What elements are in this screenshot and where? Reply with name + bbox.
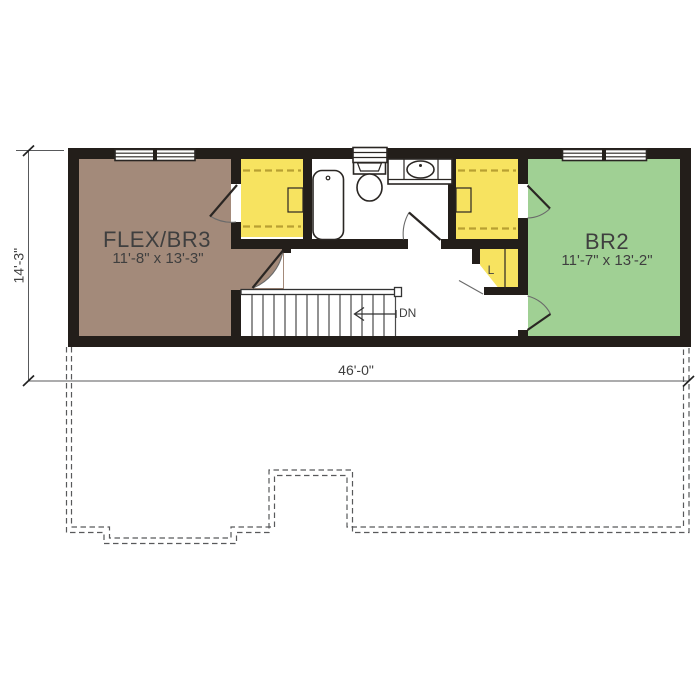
railing-newel-cap [395, 288, 402, 297]
wall-segment [231, 239, 408, 249]
room-dims-flex-br3: 11'-8" x 13'-3" [79, 251, 237, 268]
window-mullion [153, 150, 157, 161]
floor-plan-drawing [0, 0, 700, 700]
toilet-bowl [357, 174, 382, 201]
door-opening [408, 239, 441, 249]
shelf-bracket [288, 188, 303, 212]
wall-segment [518, 159, 528, 184]
window-mullion [602, 150, 606, 161]
wall-segment [231, 159, 241, 184]
sink-basin [407, 161, 434, 178]
windows [115, 148, 647, 163]
bathtub [313, 171, 344, 240]
room-label-br2: BR2 [528, 230, 686, 254]
floor-plan-canvas: FLEX/BR3 11'-8" x 13'-3" BR2 11'-7" x 13… [0, 0, 700, 700]
shelf-bracket [456, 188, 471, 212]
sink-faucet [419, 164, 422, 167]
room-dims-br2: 11'-7" x 13'-2" [528, 253, 686, 270]
wall-segment [472, 249, 480, 264]
wall-segment [484, 287, 521, 295]
stair-railing [241, 290, 399, 295]
dimension-label-left: 14'-3" [11, 236, 26, 296]
wall-segment [518, 218, 528, 295]
wall-segment [518, 330, 528, 347]
window-bath [353, 148, 387, 163]
dimension-label-bottom: 46'-0" [301, 363, 411, 378]
wall-segment [231, 290, 241, 336]
door-opening [518, 184, 528, 218]
door-opening [518, 296, 528, 330]
wall-segment [448, 239, 521, 249]
stairs-down-label: DN [399, 307, 425, 320]
room-label-flex-br3: FLEX/BR3 [79, 228, 235, 252]
linen-closet-label: L [484, 264, 498, 277]
wall-segment [303, 159, 312, 239]
